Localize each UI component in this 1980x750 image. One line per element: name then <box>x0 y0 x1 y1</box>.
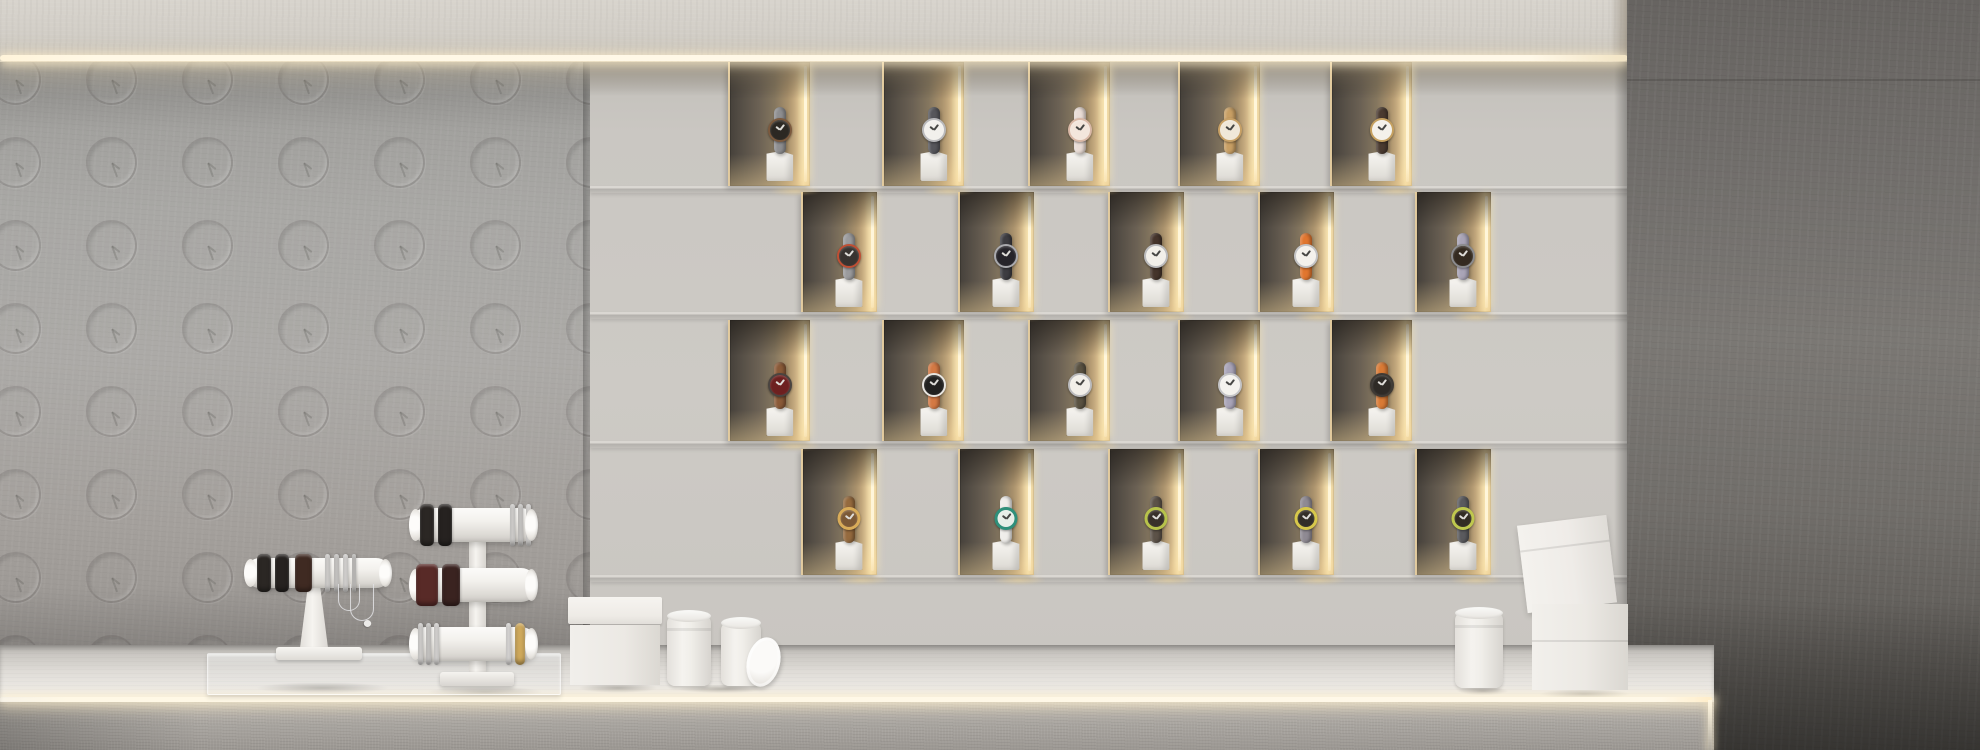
niche-top-shadow <box>1180 320 1260 356</box>
bracelet <box>418 623 423 665</box>
watch-dial <box>1144 244 1168 268</box>
display-niche <box>1028 320 1110 441</box>
niche-light-spill <box>922 441 976 451</box>
niche-top-shadow <box>1332 320 1412 356</box>
watch <box>1457 496 1469 543</box>
niche-top-shadow <box>803 449 877 487</box>
stacked-gift-boxes <box>1528 520 1632 692</box>
watch-dial <box>1294 244 1318 268</box>
gift-box-body <box>570 625 660 685</box>
bracelet <box>434 623 439 665</box>
watch <box>1000 496 1012 543</box>
led-strip-ceiling <box>0 55 1628 61</box>
niche-light-spill <box>1370 186 1424 196</box>
niche-light-spill <box>922 186 976 196</box>
niche-light-spill <box>1068 441 1122 451</box>
watch-pedestal <box>1142 277 1169 307</box>
niche-top-shadow <box>1110 449 1184 487</box>
bracelet <box>442 564 460 606</box>
display-niche <box>1330 62 1412 186</box>
watch-dial <box>1370 118 1394 142</box>
bracelet <box>518 504 523 546</box>
display-niche <box>1330 320 1412 441</box>
watch <box>843 496 855 543</box>
niche-top-shadow <box>730 62 810 99</box>
display-niche <box>1108 192 1184 312</box>
watch-dial <box>1370 373 1394 397</box>
niche-light-spill <box>1292 312 1346 322</box>
watch-dial <box>922 118 946 142</box>
watch-pedestal <box>1066 151 1093 181</box>
niche-top-shadow <box>1332 62 1412 99</box>
niche-light-spill <box>1449 575 1503 585</box>
niche-light-spill <box>992 312 1046 322</box>
bracelet <box>295 554 312 592</box>
watch <box>1150 496 1162 543</box>
bracelet-stand-single <box>238 536 410 698</box>
watch <box>1300 233 1312 280</box>
bracelet <box>526 504 531 546</box>
bracelet-bar-middle <box>410 568 537 602</box>
watch-pedestal <box>1368 151 1395 181</box>
watch <box>1376 362 1388 409</box>
watch <box>1000 233 1012 280</box>
watch-dial <box>837 244 861 268</box>
watch-pedestal <box>1216 151 1243 181</box>
watch-pedestal <box>1142 540 1169 570</box>
bracelet <box>506 623 511 665</box>
niche-top-shadow <box>1030 62 1110 99</box>
counter-front <box>0 702 1714 750</box>
watch <box>1376 107 1388 154</box>
watch-dial <box>994 244 1018 268</box>
bulkhead-texture <box>0 0 1628 62</box>
niche-top-shadow <box>1260 449 1334 487</box>
watch <box>774 362 786 409</box>
watch-dial <box>837 507 860 530</box>
watch-dial <box>1451 507 1474 530</box>
display-niche <box>1258 449 1334 575</box>
gift-box <box>570 597 660 685</box>
watch-pedestal <box>1292 540 1319 570</box>
watch-dial <box>1068 373 1092 397</box>
niche-light-spill <box>1218 186 1272 196</box>
bracelet-stand-three-tier <box>400 495 562 695</box>
display-niche <box>801 449 877 575</box>
side-wall-seam <box>1627 79 1980 81</box>
stand-foot <box>440 672 514 686</box>
display-niche <box>1178 62 1260 186</box>
watch <box>1074 107 1086 154</box>
niche-light-spill <box>1142 575 1196 585</box>
niche-light-spill <box>835 312 889 322</box>
watch-pedestal <box>1368 406 1395 436</box>
counter-front-left-shade <box>0 702 200 750</box>
chain-bracelet <box>350 584 374 621</box>
scene <box>0 0 1980 750</box>
watch <box>1074 362 1086 409</box>
niche-light-spill <box>835 575 889 585</box>
display-niche <box>882 62 964 186</box>
display-niche <box>1415 192 1491 312</box>
watch <box>1457 233 1469 280</box>
niche-top-shadow <box>1260 192 1334 228</box>
watch-pedestal <box>1449 277 1476 307</box>
bracelet <box>416 564 438 606</box>
watch <box>1224 362 1236 409</box>
gift-box-lid <box>568 597 662 624</box>
display-niche <box>958 449 1034 575</box>
bracelet <box>275 554 289 592</box>
watch-pedestal <box>766 406 793 436</box>
display-niche <box>1028 62 1110 186</box>
niche-top-shadow <box>1417 192 1491 228</box>
stacked-box-top <box>1517 515 1617 613</box>
niche-top-shadow <box>1417 449 1491 487</box>
watch-pedestal <box>1292 277 1319 307</box>
watch <box>928 362 940 409</box>
bracelet <box>438 504 452 546</box>
display-niche <box>1108 449 1184 575</box>
counter-front-texture <box>0 702 1714 750</box>
canister-right <box>1455 612 1503 688</box>
watch <box>1150 233 1162 280</box>
watch-dial <box>1068 118 1092 142</box>
watch-pedestal <box>1449 540 1476 570</box>
watch <box>1224 107 1236 154</box>
niche-top-shadow <box>803 192 877 228</box>
watch-dial <box>768 373 792 397</box>
ceiling-bulkhead <box>0 0 1628 62</box>
niche-light-spill <box>768 441 822 451</box>
display-niche <box>1258 192 1334 312</box>
watch-dial <box>994 507 1017 530</box>
bracelet <box>420 504 434 546</box>
display-niche <box>728 62 810 186</box>
bracelet <box>515 623 525 665</box>
display-niche <box>1415 449 1491 575</box>
watch-pedestal <box>1066 406 1093 436</box>
watch-dial <box>1451 244 1475 268</box>
niche-light-spill <box>1068 186 1122 196</box>
niche-light-spill <box>992 575 1046 585</box>
stand-foot <box>276 647 362 660</box>
display-niche <box>958 192 1034 312</box>
niche-top-shadow <box>1110 192 1184 228</box>
led-strip-counter-corner <box>1708 700 1712 750</box>
watch-dial <box>922 373 946 397</box>
stacked-box-bottom <box>1532 604 1628 690</box>
niche-light-spill <box>1218 441 1272 451</box>
watch <box>774 107 786 154</box>
niche-light-spill <box>1370 441 1424 451</box>
niche-light-spill <box>768 186 822 196</box>
niche-top-shadow <box>884 320 964 356</box>
niche-light-spill <box>1142 312 1196 322</box>
bracelet <box>257 554 271 592</box>
bracelet <box>510 504 515 546</box>
niche-top-shadow <box>960 449 1034 487</box>
watch <box>928 107 940 154</box>
display-niche <box>882 320 964 441</box>
display-niche <box>801 192 877 312</box>
side-wall <box>1627 0 1980 750</box>
watch-pedestal <box>920 151 947 181</box>
display-niche <box>1178 320 1260 441</box>
bracelet-bar-top <box>410 508 537 542</box>
watch-dial <box>1218 118 1242 142</box>
watch-pedestal <box>1216 406 1243 436</box>
watch-pedestal <box>992 540 1019 570</box>
bulkhead-end-face <box>1610 0 1628 62</box>
niche-top-shadow <box>730 320 810 356</box>
niche-light-spill <box>1292 575 1346 585</box>
watch-pedestal <box>920 406 947 436</box>
niche-top-shadow <box>960 192 1034 228</box>
watch-dial <box>1218 373 1242 397</box>
watch-pedestal <box>766 151 793 181</box>
display-niche <box>728 320 810 441</box>
niche-top-shadow <box>1030 320 1110 356</box>
bracelet <box>325 554 330 592</box>
niche-top-shadow <box>884 62 964 99</box>
niche-top-shadow <box>1180 62 1260 99</box>
stand-post <box>300 586 328 648</box>
watch-dial <box>1294 507 1317 530</box>
bracelet <box>426 623 431 665</box>
watch <box>843 233 855 280</box>
watch-dial <box>768 118 792 142</box>
watch-pedestal <box>992 277 1019 307</box>
niche-light-spill <box>1449 312 1503 322</box>
watch-pedestal <box>835 277 862 307</box>
watch-dial <box>1144 507 1167 530</box>
watch-pedestal <box>835 540 862 570</box>
watch <box>1300 496 1312 543</box>
canister <box>667 615 711 686</box>
bracelet-bar-bottom <box>410 627 537 661</box>
heart-charm <box>363 619 373 629</box>
